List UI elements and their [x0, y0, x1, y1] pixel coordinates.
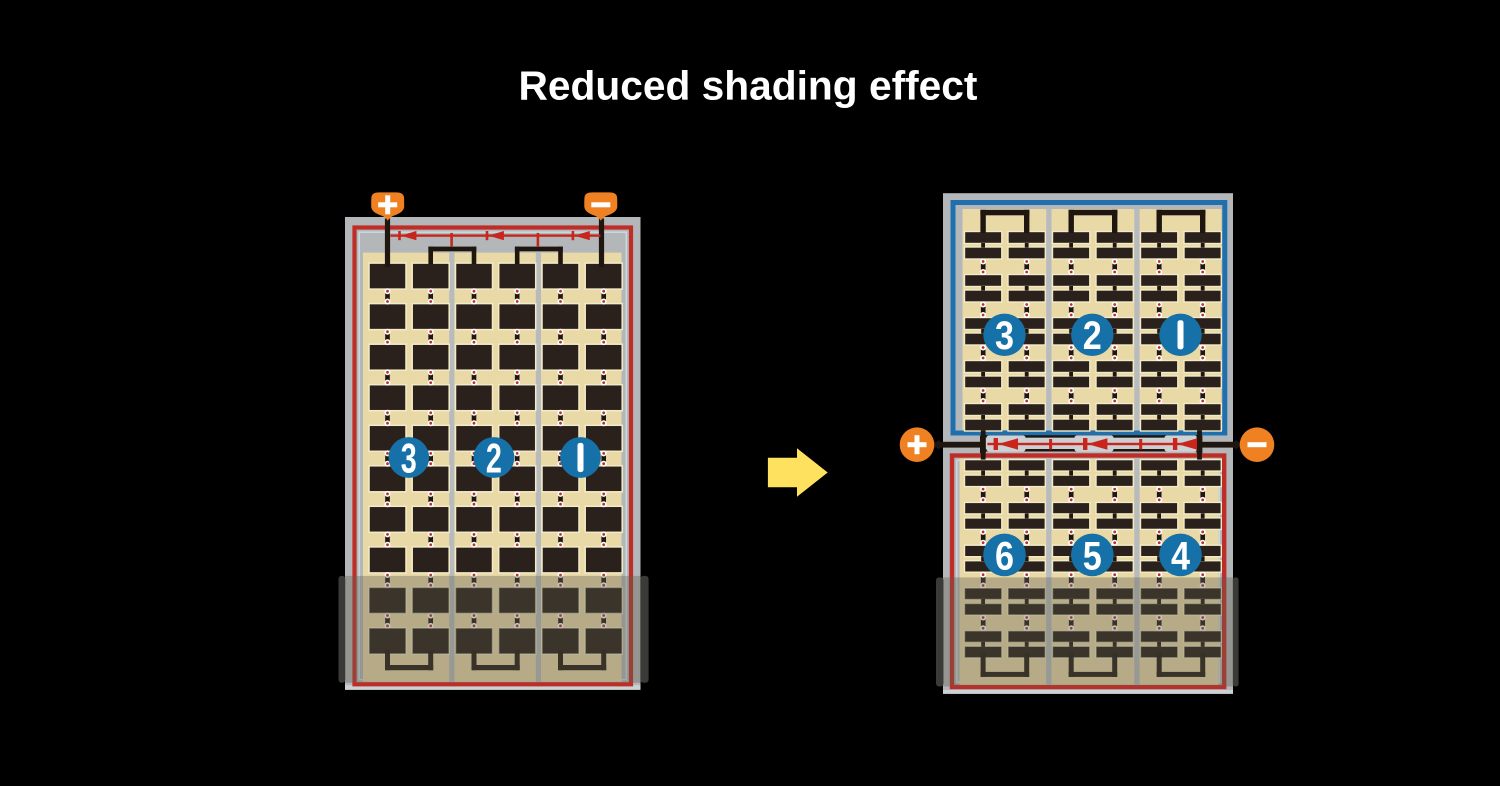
svg-text:6: 6	[995, 534, 1014, 578]
svg-text:5: 5	[1083, 534, 1102, 578]
svg-text:4: 4	[1171, 534, 1191, 578]
svg-text:2: 2	[486, 435, 502, 482]
svg-text:Reduced shading effect: Reduced shading effect	[519, 63, 978, 109]
svg-text:2: 2	[1083, 314, 1102, 358]
svg-text:3: 3	[995, 314, 1014, 358]
svg-text:3: 3	[401, 435, 417, 482]
